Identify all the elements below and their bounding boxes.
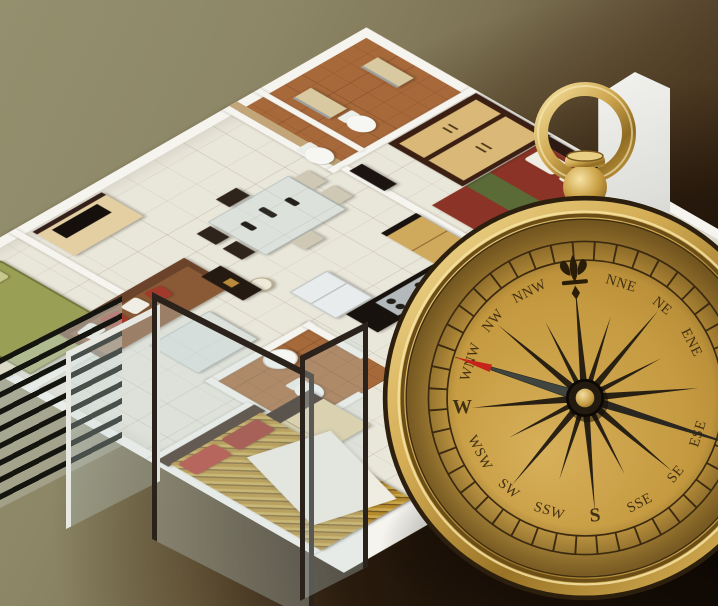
- scene: NNE NE ENE ESE SE SSE S SSW SW WSW W WNW…: [0, 0, 718, 606]
- direction-label: W: [452, 397, 472, 418]
- pivot-brass-ball: [576, 389, 595, 408]
- handle-knob-cap-top: [567, 151, 603, 161]
- compass: NNE NE ENE ESE SE SSE S SSW SW WSW W WNW…: [380, 193, 718, 603]
- direction-label: S: [589, 505, 602, 527]
